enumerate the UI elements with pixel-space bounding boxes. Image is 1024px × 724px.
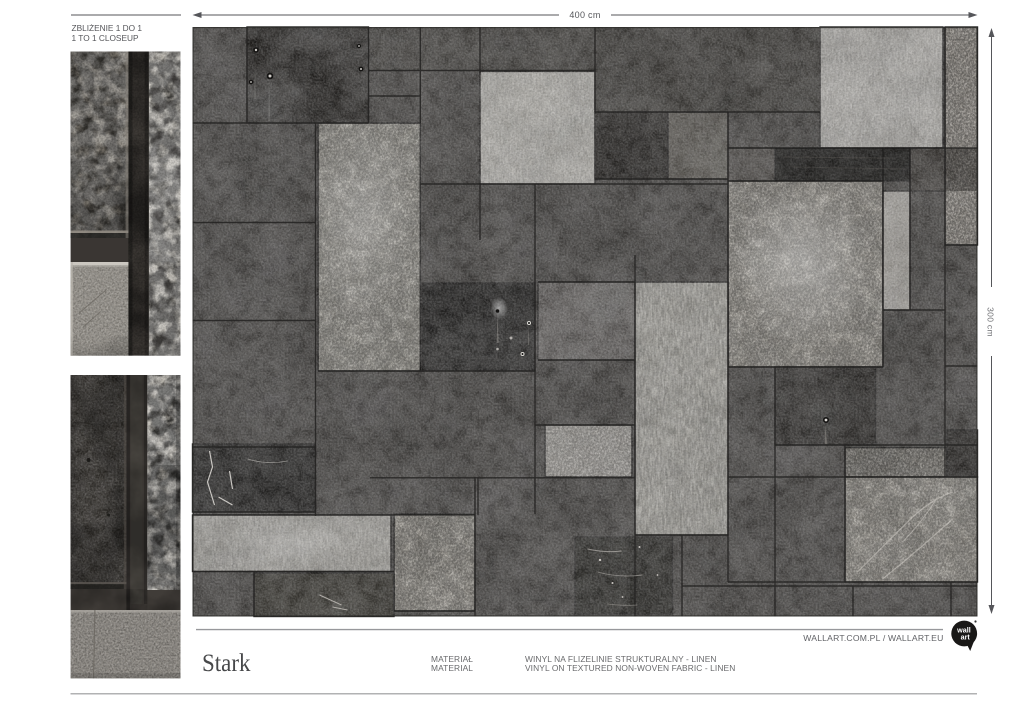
svg-text:art: art (961, 632, 971, 641)
